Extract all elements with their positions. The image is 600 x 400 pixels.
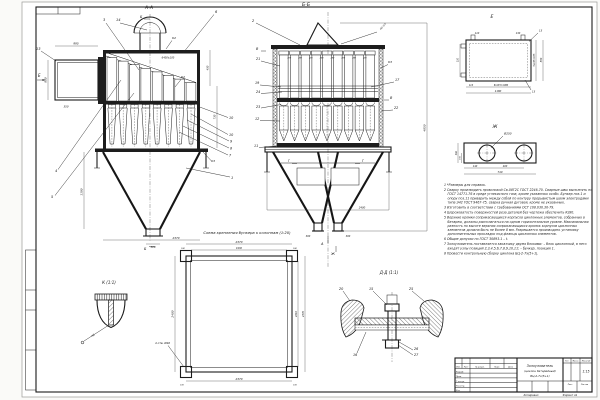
- note-6: 6 Общие допуски по ГОСТ 30893.1 – t.: [444, 237, 593, 241]
- dim-880-right: 880: [540, 57, 543, 62]
- view-mark-g-right: Г: [362, 159, 364, 163]
- detail-k-label: К (1:1): [102, 280, 116, 285]
- detail-j-label: Ж: [492, 124, 499, 130]
- tb-data: Дата: [507, 366, 514, 368]
- doc-name-line1: Золоуловитель: [527, 364, 553, 368]
- callout-25: 25: [409, 287, 413, 291]
- callout-19: 19: [255, 81, 259, 85]
- dim-110-bottom: 110: [469, 84, 474, 87]
- scheme-title: Схема крепления бункера к колоннам (1:20…: [203, 231, 291, 235]
- doc-name-line3: БЦ-2-7х(5+1): [530, 374, 549, 378]
- dim-800: 800: [44, 77, 48, 83]
- weld-k2-a: К2: [172, 36, 176, 40]
- dim-300-j: 300: [455, 150, 458, 155]
- tb-podp: Подп.: [494, 366, 500, 368]
- dim-140: 140: [473, 165, 478, 168]
- note-3: 3 Изготовить в соответствии с требования…: [444, 205, 593, 209]
- tb-dokum: № докум.: [474, 365, 485, 368]
- dim-6400: 6400±100: [162, 57, 175, 60]
- hole-13-bottom: 13: [532, 90, 536, 94]
- note-4: 4 Шероховатость поверхностей реза детале…: [444, 211, 593, 215]
- note-7: 7 Золоуловитель поставляется заказчику д…: [444, 242, 593, 250]
- technical-notes: 1 *Размеры для справок. 2 Сварку произво…: [444, 183, 593, 257]
- callout-24: 24: [256, 90, 260, 94]
- bottom-plate-side: [277, 143, 379, 147]
- dim-2400-side: 2400: [359, 206, 366, 210]
- dim-4850: 4850: [423, 124, 427, 131]
- view-mark-g-left: Г: [288, 159, 290, 163]
- dim-130-top: 130: [516, 32, 521, 35]
- callout-22: 22: [394, 106, 398, 110]
- tb-list: Лист: [463, 366, 470, 368]
- callout-10b: 10: [229, 133, 233, 137]
- note-2: 2 Сварку производить проволокой Св-08Г2С…: [444, 188, 593, 204]
- tb-prov: Пров.: [456, 376, 462, 378]
- doc-name-line2: (циклон батарейный): [524, 369, 556, 373]
- dim-730: 730: [213, 114, 217, 119]
- tb-list2: Лист: [566, 384, 573, 386]
- tb-kopiroval: Копировал: [524, 393, 539, 397]
- note-1: 1 *Размеры для справок.: [444, 183, 593, 187]
- dim-1080-bottom: 8х135=1080: [494, 84, 509, 87]
- view-mark-j: Ж: [330, 252, 335, 256]
- weld-k3-front: К3: [211, 159, 215, 163]
- dim-350: 350: [64, 105, 69, 109]
- dim-1190: 1190: [80, 188, 84, 195]
- dim-2370-front: 2370: [172, 236, 179, 240]
- dim-400: 400: [503, 165, 508, 168]
- tb-razrab: Разраб.: [456, 370, 464, 373]
- dim-1180-bottom: 1180: [495, 89, 502, 93]
- dim-110-left: 110: [457, 57, 460, 62]
- callout-1: 1: [231, 176, 233, 180]
- tube-sheet-side: [277, 98, 379, 102]
- callout-14: 14: [116, 18, 121, 22]
- callout-9: 9: [230, 140, 232, 144]
- dim-2370-top: 2370: [235, 240, 242, 244]
- tb-massa: Масса: [573, 361, 579, 363]
- tb-format: Формат A1: [563, 393, 578, 397]
- callout-11: 11: [254, 144, 258, 148]
- tb-scale-value: 1:15: [582, 370, 589, 374]
- detail-e-label: Е: [491, 14, 494, 20]
- joint-plate: [355, 318, 429, 325]
- dim-2400-plan: 2400: [171, 310, 175, 317]
- hole-13-top: 13: [539, 29, 543, 33]
- dim-2210: 2210: [295, 310, 298, 317]
- note-8: 8 Провести контрольную сборку циклона БЦ…: [444, 251, 593, 255]
- callout-13: 13: [36, 47, 41, 51]
- callout-10a: 10: [229, 116, 233, 120]
- dim-675-right: 5х135=675: [533, 53, 536, 66]
- hole-dia-250: Ø250: [503, 131, 512, 136]
- drawing-sheet: А-А Б Е: [0, 0, 600, 400]
- tb-listov: Листов: [580, 384, 589, 386]
- detail-dd-label: Д-Д (1:1): [379, 270, 399, 275]
- tb-masshtab: Масштаб: [582, 360, 591, 363]
- tb-izm: Изм.: [456, 366, 461, 368]
- section-mark-a: А: [320, 242, 324, 246]
- dim-740: 740: [498, 170, 503, 174]
- tb-tkontr: Т.контр.: [456, 381, 465, 383]
- tb-nkontr: Н.контр.: [456, 386, 465, 388]
- section-label-aa: А-А: [144, 5, 153, 11]
- dim-450: 450: [206, 65, 210, 70]
- callout-12: 12: [255, 117, 259, 121]
- callout-21: 21: [256, 57, 260, 61]
- dim-110-top: 110: [475, 32, 480, 35]
- callout-16: 16: [353, 353, 357, 357]
- callout-26: 26: [414, 347, 418, 351]
- holes-callout: 4 отв. Ø40: [155, 340, 170, 345]
- weld-k3-side: К3: [388, 60, 392, 64]
- weld-k2-b: К2: [181, 75, 185, 79]
- dim-300-front: 300: [151, 245, 156, 249]
- dim-2370-bottom: 2370: [235, 377, 242, 381]
- callout-20: 20: [339, 287, 343, 291]
- dim-2370-right: 2370: [302, 310, 305, 317]
- section-label-bb: Б-Б: [302, 2, 310, 8]
- dim-300-right: 300: [346, 235, 351, 238]
- callout-15: 15: [369, 287, 373, 291]
- dim-1930: 1930: [236, 247, 243, 250]
- tb-utv: Утв.: [456, 390, 461, 392]
- tube-sheet-front: [106, 101, 197, 105]
- dim-300-left: 300: [306, 235, 311, 238]
- tb-lit: Лит.: [564, 361, 570, 363]
- dim-995: 995: [73, 42, 79, 46]
- note-5: 5 Верхние кромки соприкасающихся корпусо…: [444, 216, 593, 236]
- callout-23: 23: [256, 105, 260, 109]
